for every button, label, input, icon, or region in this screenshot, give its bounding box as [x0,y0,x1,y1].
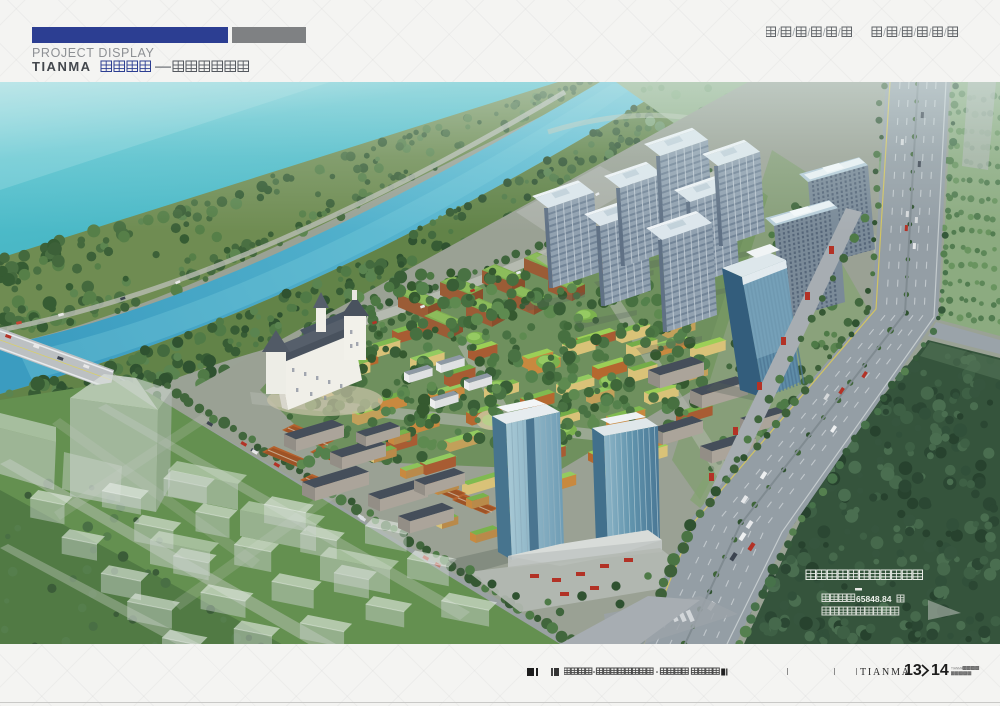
svg-text:TIANMA: TIANMA [951,667,964,671]
svg-text:65848.84: 65848.84 [856,594,892,604]
